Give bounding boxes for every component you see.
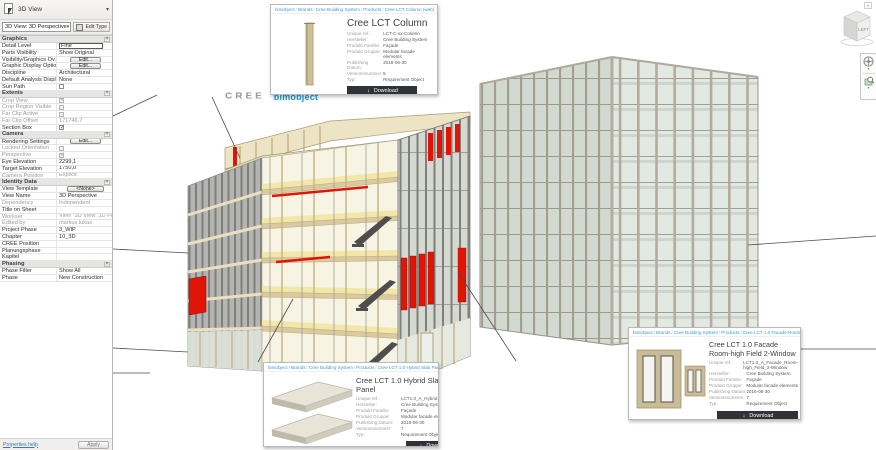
properties-footer: Properties help Apply [0, 439, 112, 450]
product-field-row: Versionsnummer:7 [709, 396, 798, 401]
property-row-title-on-sheet: Title on Sheet [0, 207, 112, 214]
download-button[interactable]: Download [717, 411, 798, 421]
property-row-discipline: DisciplineArchitectural [0, 70, 112, 77]
property-row-view-template: View Template<None> [0, 186, 112, 193]
breadcrumb-separator: / [375, 365, 376, 370]
section-collapse-button[interactable]: ^ [104, 262, 110, 267]
product-field-row: Hersteller:Cree Building System [709, 372, 798, 377]
property-label: Target Elevation [0, 166, 57, 172]
property-label: Discipline [0, 70, 57, 76]
graphic-display-optio-button[interactable]: Edit... [70, 63, 101, 69]
property-value[interactable] [57, 241, 112, 247]
download-icon [419, 443, 424, 447]
breadcrumb-separator: / [672, 330, 673, 335]
download-label: Download [426, 443, 439, 447]
property-value[interactable]: New Construction [57, 275, 112, 281]
breadcrumb-separator: / [740, 330, 741, 335]
property-row-crop-view: Crop View [0, 98, 112, 105]
breadcrumb-link-cree-building-system[interactable]: Cree Building System [309, 365, 353, 370]
section-header-identity-data[interactable]: Identity Data^ [0, 179, 112, 186]
breadcrumb-link-brands[interactable]: Brands [298, 7, 313, 12]
rendering-settings-button[interactable]: Edit... [70, 139, 101, 145]
product-field-row: Typ:Requirement Object [347, 78, 433, 83]
product-field-row: Publishing Datum:2016-06-30 [709, 390, 798, 395]
property-row-detail-level: Detail LevelFine [0, 43, 112, 50]
download-icon [366, 88, 371, 94]
breadcrumb-link-bimobject[interactable]: bimobject [268, 365, 288, 370]
property-value[interactable]: 1750,0 [57, 166, 112, 172]
property-row-locked-orientation: Locked Orientation [0, 145, 112, 152]
product-field-label: Produkt Gruppe: [347, 50, 383, 60]
property-grid: Graphics^Detail LevelFineParts Visibilit… [0, 35, 112, 282]
properties-help-link[interactable]: Properties help [3, 442, 38, 448]
type-selector-row: 3D View: 3D Perspective Edit Type [0, 20, 112, 35]
edit-type-label: Edit Type [85, 24, 107, 30]
type-selector[interactable]: 3D View: 3D Perspective [2, 22, 71, 32]
revit-window: 3D View ▾ 3D View: 3D Perspective Edit T… [0, 0, 876, 450]
property-value: 171746,7 [57, 118, 112, 124]
property-value: <None> [57, 186, 112, 192]
steering-wheel-button[interactable]: ▾ [863, 56, 874, 71]
properties-icon [3, 3, 15, 16]
property-row-planungsphase: Planungsphase [0, 248, 112, 255]
property-value [57, 84, 112, 90]
download-label: Download [374, 88, 398, 94]
section-name: Extents [2, 90, 23, 97]
product-field-row: Publishing Datum:2016-06-30 [347, 61, 433, 71]
product-title: Cree LCT 1.0 Facade Room-high Field 2-Wi… [709, 341, 798, 358]
property-row-far-clip-offset: Far Clip Offset171746,7 [0, 118, 112, 125]
property-label: Default Analysis Displ... [0, 77, 57, 83]
product-field-row: Versionsnummer:7 [356, 427, 439, 432]
breadcrumb-link-cree-lct-1-0-hybrid-slab-panel-web[interactable]: Cree LCT 1.0 Hybrid Slab Panel (web) [378, 365, 438, 370]
breadcrumb-separator: / [289, 365, 290, 370]
product-field-value: 7 [401, 427, 439, 432]
property-value: Independent [57, 200, 112, 206]
view-category-label: 3D View [18, 6, 103, 13]
property-row-target-elevation: Target Elevation1750,0 [0, 166, 112, 173]
property-label: Visibility/Graphics Ov... [0, 57, 57, 63]
product-field-label: Hersteller: [709, 372, 746, 377]
product-field-value: Requirement Object [383, 78, 433, 83]
product-title: Cree LCT Column [347, 18, 433, 29]
property-row-phase: PhaseNew Construction [0, 275, 112, 282]
breadcrumb-separator: / [382, 7, 383, 12]
viewcube-menu-button[interactable]: ▾ [864, 2, 872, 9]
product-field-row: Publishing Datum:2016-06-30 [356, 421, 439, 426]
property-value[interactable]: 10_3D [57, 234, 112, 240]
product-field-value: 2016-06-30 [401, 421, 439, 426]
property-value: Edit... [57, 63, 112, 69]
property-label: Graphic Display Optio... [0, 63, 57, 69]
crop-region-visible-checkbox [59, 105, 64, 110]
breadcrumb: bimobject/Brands/Cree Building System/Pr… [264, 363, 438, 372]
breadcrumb-link-cree-building-system[interactable]: Cree Building System [316, 7, 360, 12]
property-row-chapter: Chapter10_3D [0, 234, 112, 241]
property-value [57, 125, 112, 131]
sun-path-checkbox[interactable] [59, 84, 64, 89]
property-row-rendering-settings: Rendering SettingsEdit... [0, 139, 112, 146]
property-label: Crop Region Visible [0, 104, 57, 110]
product-field-row: Produkt Gruppe:Modular facade elements [347, 50, 433, 60]
product-field-row: Produkt Familie:Façade [709, 378, 798, 383]
property-row-graphic-display-optio: Graphic Display Optio...Edit... [0, 63, 112, 70]
viewcube-face-label: LEFT [858, 27, 869, 32]
property-grid-spacer [0, 282, 112, 439]
property-label: Project Phase [0, 227, 57, 233]
left-ground-glass [188, 330, 262, 371]
breadcrumb-link-bimobject[interactable]: bimobject [275, 7, 295, 12]
product-field-value: Modular facade elements [746, 384, 798, 389]
property-value[interactable]: Show Original [57, 50, 112, 56]
breadcrumb: bimobject/Brands/Cree Building System/Pr… [271, 5, 437, 14]
property-value [57, 104, 112, 110]
product-field-label: Typ: [709, 402, 746, 407]
product-field-label: Versionsnummer: [356, 427, 401, 432]
breadcrumb-link-cree-lct-column-web[interactable]: Cree LCT Column (web) [385, 7, 435, 12]
property-row-crop-region-visible: Crop Region Visible [0, 104, 112, 111]
property-label: View Name [0, 193, 57, 199]
red-facade-panel-left [189, 276, 206, 315]
section-collapse-button[interactable]: ^ [104, 132, 110, 137]
product-field-value: 2016-06-30 [383, 61, 433, 71]
property-row-visibility-graphics-ov: Visibility/Graphics Ov...Edit... [0, 57, 112, 64]
property-row-project-phase: Project Phase3_WIP [0, 227, 112, 234]
property-value[interactable]: Architectural [57, 70, 112, 76]
property-value [57, 152, 112, 158]
product-field-label: Versionsnummer: [709, 396, 746, 401]
main-building[interactable] [188, 112, 470, 386]
locked-orientation-checkbox [59, 146, 64, 151]
breadcrumb-separator: / [654, 330, 655, 335]
property-row-cree-position: CREE Position [0, 241, 112, 248]
product-field-row: Unique ref.:LCT1.0_A_Facade_Room-high_Fi… [709, 361, 798, 371]
detail-level-input[interactable]: Fine [59, 43, 103, 49]
property-label: Rendering Settings [0, 139, 57, 145]
property-label: Detail Level [0, 43, 57, 49]
product-field-value: Modular facade elements [383, 50, 433, 60]
property-row-edited-by: Edited bymarkus.lukas [0, 220, 112, 227]
perspective-checkbox [59, 153, 64, 158]
breadcrumb-separator: / [296, 7, 297, 12]
bimobject-card-column: bimobject/Brands/Cree Building System/Pr… [270, 4, 438, 95]
property-value[interactable]: 3_WIP [57, 227, 112, 233]
property-label: Title on Sheet [0, 207, 57, 213]
property-value: Explicit [57, 173, 112, 179]
section-name: Identity Data [2, 179, 37, 186]
property-value: Fine [57, 43, 112, 49]
type-selector-value: 3D View: 3D Perspective [5, 24, 67, 30]
property-value: Edit... [57, 57, 112, 63]
section-collapse-button[interactable]: ^ [104, 37, 110, 42]
property-label: Sun Path [0, 84, 57, 90]
chevron-down-icon[interactable]: ▾ [867, 67, 869, 71]
product-field-label: Versionsnummer: [347, 72, 383, 77]
property-row-far-clip-active: Far Clip Active [0, 111, 112, 118]
navigation-bar: ▾ ▾ [860, 53, 876, 100]
property-label: Edited by [0, 220, 57, 226]
property-row-phase-filter: Phase FilterShow All [0, 268, 112, 275]
breadcrumb-link-cree-lct-1-0-facade-room-high-field-2-window-web[interactable]: Cree LCT 1.0 Facade Room-high Field 2-Wi… [743, 330, 800, 335]
property-value[interactable] [57, 248, 112, 254]
property-row-workset: WorksetView "3D View: 3D Per... [0, 214, 112, 221]
section-box-checkbox[interactable] [59, 125, 64, 130]
properties-panel: 3D View ▾ 3D View: 3D Perspective Edit T… [0, 0, 113, 450]
property-value [57, 98, 112, 104]
visibility-graphics-ov-button[interactable]: Edit... [70, 57, 101, 63]
background-tower[interactable] [480, 57, 758, 345]
property-value: markus.lukas [57, 220, 112, 226]
product-image-column [271, 14, 347, 94]
property-value [57, 111, 112, 117]
property-row-parts-visibility: Parts VisibilityShow Original [0, 50, 112, 57]
property-row-default-analysis-displ: Default Analysis Displ...None [0, 77, 112, 84]
cree-logo: CREE [225, 92, 265, 101]
property-label: Phase [0, 275, 57, 281]
section-header-graphics[interactable]: Graphics^ [0, 36, 112, 43]
property-value[interactable]: Show All [57, 268, 112, 274]
property-label: Far Clip Active [0, 111, 57, 117]
breadcrumb-link-cree-building-system[interactable]: Cree Building System [674, 330, 718, 335]
product-field-value: LCT1.0_A_Facade_Room-high_Field_2-Window [743, 361, 798, 371]
product-field-label: Publishing Datum: [356, 421, 401, 426]
navbar-divider [863, 73, 875, 74]
download-icon [742, 413, 747, 419]
property-label: Workset [0, 214, 57, 220]
chevron-down-icon[interactable]: ▾ [106, 6, 109, 13]
properties-panel-header[interactable]: 3D View ▾ [0, 0, 112, 20]
property-label: Locked Orientation [0, 145, 57, 151]
property-value[interactable]: 2299,1 [57, 159, 112, 165]
section-header-phasing[interactable]: Phasing^ [0, 261, 112, 268]
property-row-eye-elevation: Eye Elevation2299,1 [0, 159, 112, 166]
product-title: Cree LCT 1.0 Hybrid Slab Panel [356, 376, 439, 394]
property-label: CREE Position [0, 241, 57, 247]
section-header-extents[interactable]: Extents^ [0, 91, 112, 98]
product-field-value: Requirement Object [401, 433, 439, 438]
property-label: Section Box [0, 125, 57, 131]
property-label: Planungsphase [0, 248, 57, 254]
breadcrumb-link-products[interactable]: Products [356, 365, 374, 370]
property-label: View Template [0, 186, 57, 192]
apply-button[interactable]: Apply [78, 441, 109, 449]
chevron-down-icon[interactable]: ▾ [867, 86, 869, 90]
product-field-value: 2016-06-30 [746, 390, 798, 395]
product-image-facade-fields [629, 337, 709, 419]
breadcrumb-link-brands[interactable]: Brands [656, 330, 671, 335]
3d-viewport[interactable]: CREE bimobject LEFT ▾ ▾ [113, 0, 876, 450]
product-field-value: Façade [746, 378, 798, 383]
breadcrumb-link-products[interactable]: Products [721, 330, 739, 335]
download-label: Download [749, 413, 773, 419]
crop-view-checkbox [59, 98, 64, 103]
download-button[interactable]: Download [347, 86, 417, 95]
breadcrumb-link-products[interactable]: Products [363, 7, 381, 12]
edit-type-button[interactable]: Edit Type [73, 22, 110, 32]
bimobject-card-facade-field: bimobject/Brands/Cree Building System/Pr… [628, 327, 801, 420]
property-label: Dependency [0, 200, 57, 206]
far-clip-active-checkbox [59, 112, 64, 117]
product-field-value: 5 [383, 72, 433, 77]
product-image-slab-panels [264, 372, 356, 446]
product-field-label: Produkt Gruppe: [709, 384, 746, 389]
property-label: Camera Position [0, 173, 57, 179]
bimobject-card-slab: bimobject/Brands/Cree Building System/Pr… [263, 362, 439, 447]
product-field-value: 7 [746, 396, 798, 401]
section-name: Graphics [2, 36, 27, 43]
section-collapse-button[interactable]: ^ [104, 91, 110, 96]
property-row-dependency: DependencyIndependent [0, 200, 112, 207]
product-field-label: Typ: [356, 433, 401, 438]
product-fields: Unique ref.:LCT1.0_A_Hybrid Slab PanelHe… [356, 397, 439, 438]
property-value[interactable]: None [57, 77, 112, 83]
breadcrumb: bimobject/Brands/Cree Building System/Pr… [629, 328, 800, 337]
zoom-button[interactable]: ▾ [864, 76, 874, 90]
viewcube[interactable]: LEFT [832, 6, 876, 50]
property-label: Eye Elevation [0, 159, 57, 165]
property-row-view-name: View Name3D Perspective [0, 193, 112, 200]
product-field-label: Publishing Datum: [347, 61, 383, 71]
product-field-label: Publishing Datum: [709, 390, 746, 395]
section-name: Camera [2, 131, 23, 138]
product-field-row: Typ:Requirement Object [709, 402, 798, 407]
property-label: Chapter [0, 234, 57, 240]
breadcrumb-separator: / [314, 7, 315, 12]
product-field-row: Typ:Requirement Object [356, 433, 439, 438]
product-field-label: Unique ref.: [709, 361, 743, 371]
section-header-camera[interactable]: Camera^ [0, 132, 112, 139]
property-label: Phase Filter [0, 268, 57, 274]
download-button[interactable]: Download [406, 441, 439, 447]
product-fields: Unique ref.:LCT-C-xx-ColumnHersteller:Cr… [347, 32, 433, 82]
section-name: Phasing [2, 261, 25, 268]
product-field-value: Requirement Object [746, 402, 798, 407]
breadcrumb-separator: / [307, 365, 308, 370]
property-label: Crop View [0, 98, 57, 104]
view-template-button[interactable]: <None> [67, 186, 103, 192]
property-value: Edit... [57, 139, 112, 145]
property-label: Parts Visibility [0, 50, 57, 56]
property-label: Kapitel [0, 254, 57, 260]
property-value[interactable] [57, 254, 112, 260]
breadcrumb-link-bimobject[interactable]: bimobject [633, 330, 653, 335]
property-value [57, 145, 112, 151]
property-row-perspective: Perspective [0, 152, 112, 159]
property-value[interactable] [57, 207, 112, 213]
product-field-value: Cree Building System [746, 372, 798, 377]
property-value[interactable]: 3D Perspective [57, 193, 112, 199]
section-collapse-button[interactable]: ^ [104, 180, 110, 185]
product-field-row: Produkt Gruppe:Modular facade elements [709, 384, 798, 389]
breadcrumb-link-brands[interactable]: Brands [291, 365, 306, 370]
product-field-row: Versionsnummer:5 [347, 72, 433, 77]
product-field-label: Produkt Familie: [709, 378, 746, 383]
product-field-label: Typ: [347, 78, 383, 83]
product-fields: Unique ref.:LCT1.0_A_Facade_Room-high_Fi… [709, 361, 798, 407]
property-label: Far Clip Offset [0, 118, 57, 124]
property-value: View "3D View: 3D Per... [57, 214, 112, 220]
property-label: Perspective [0, 152, 57, 158]
